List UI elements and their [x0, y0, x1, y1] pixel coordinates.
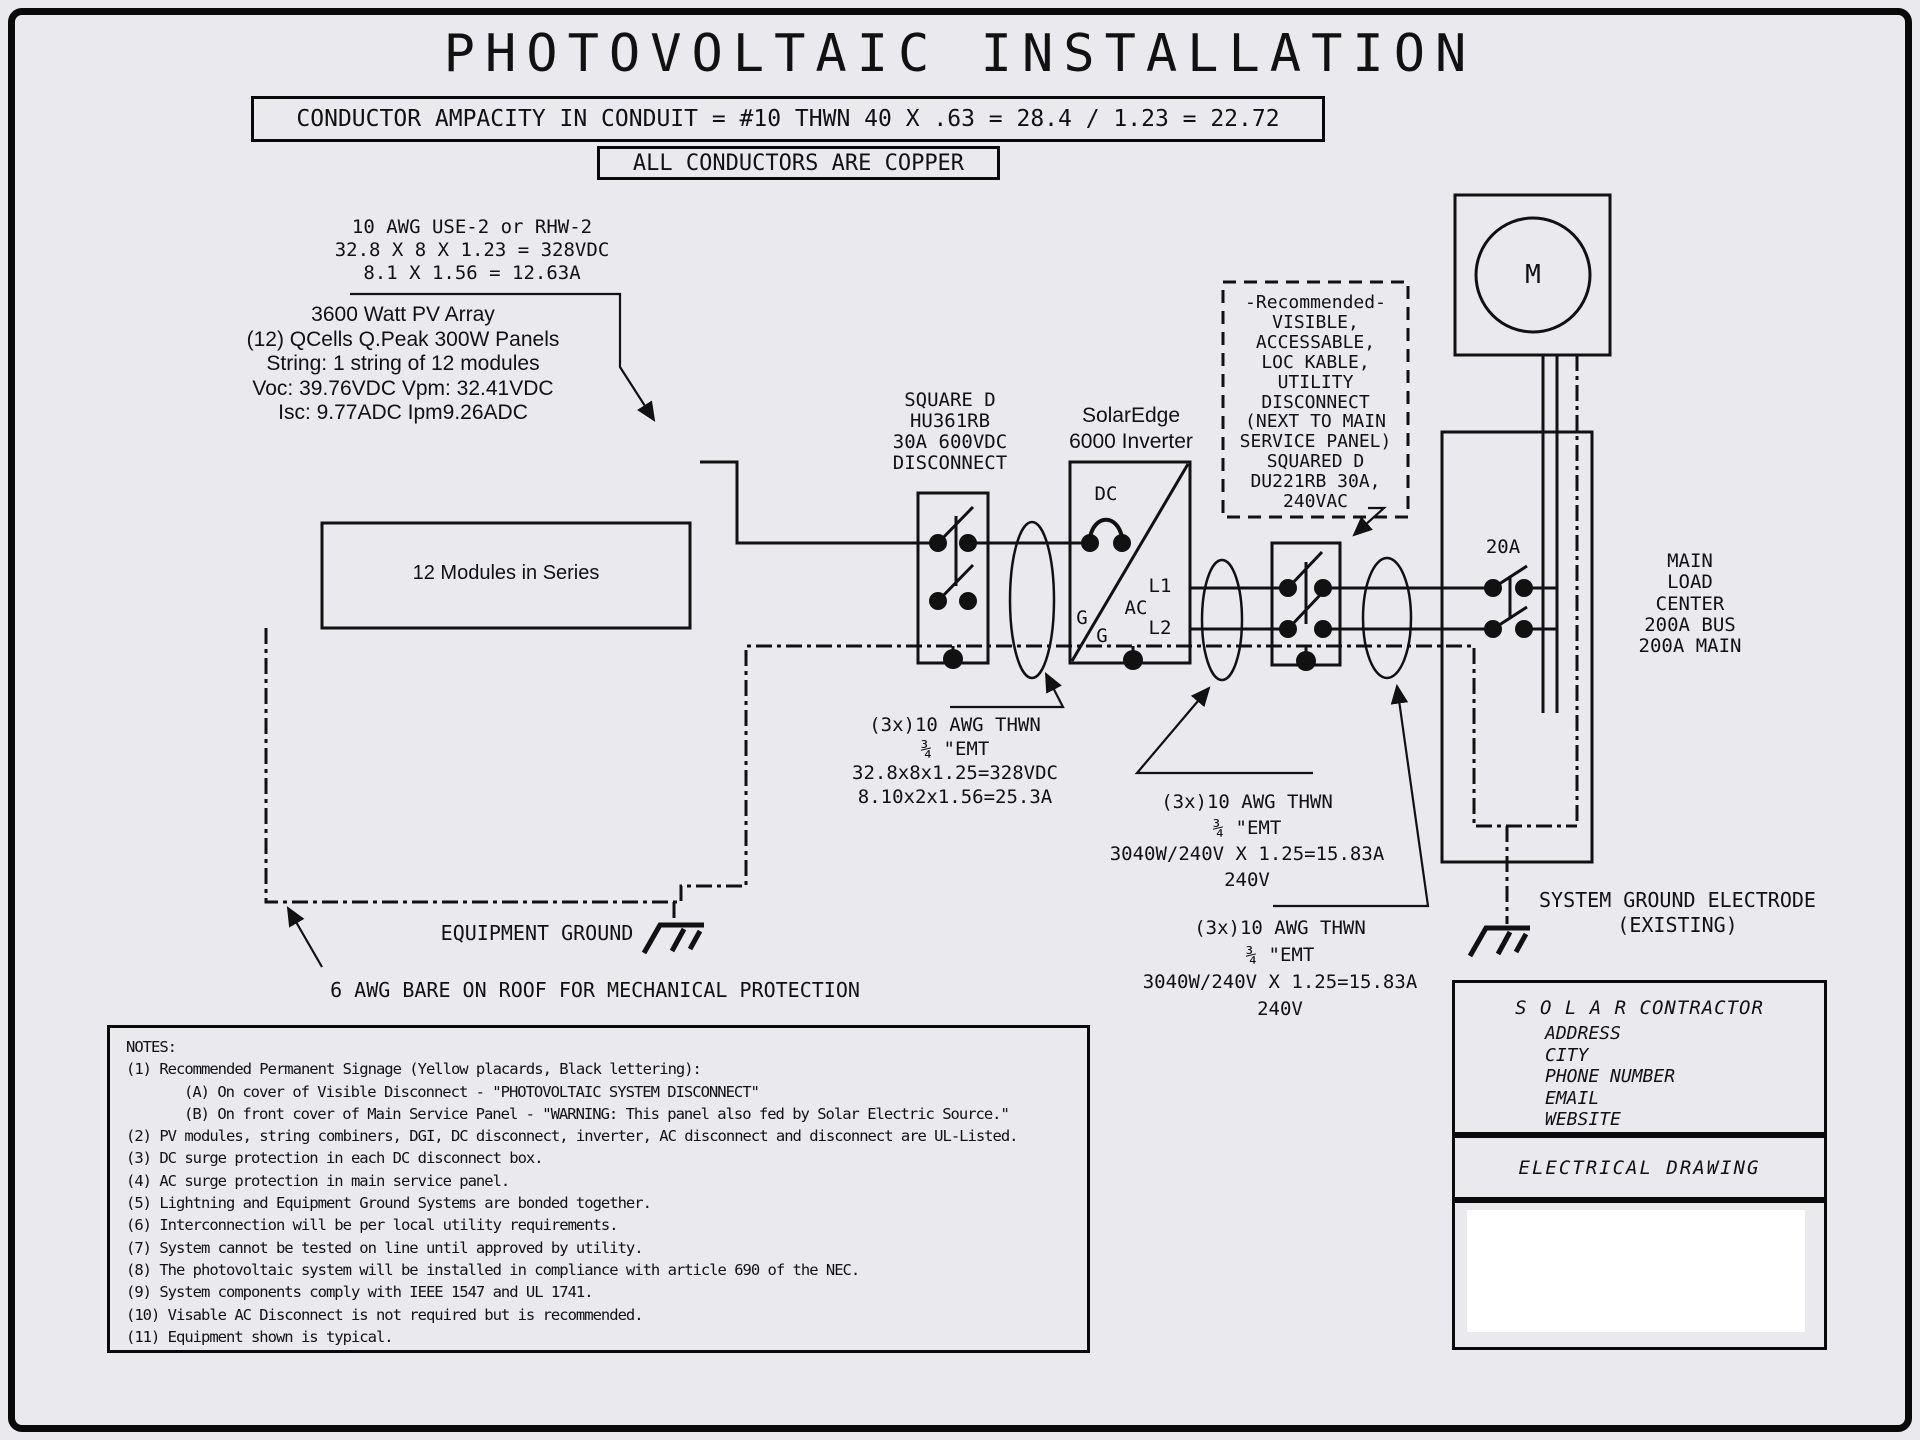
dc-disconnect-label: SQUARE D HU361RB 30A 600VDC DISCONNECT: [850, 390, 1050, 474]
note-line: (2) PV modules, string combiners, DGI, D…: [126, 1125, 1087, 1147]
note-line: (8) The photovoltaic system will be inst…: [126, 1259, 1087, 1281]
ampacity-banner-text: CONDUCTOR AMPACITY IN CONDUIT = #10 THWN…: [296, 106, 1279, 132]
note-line: (6) Interconnection will be per local ut…: [126, 1214, 1087, 1236]
conduit-note-ac1: (3x)10 AWG THWN ¾ "EMT 3040W/240V X 1.25…: [1097, 789, 1397, 893]
inverter-g2-mark: G: [1086, 625, 1118, 647]
breaker-20a-label: 20A: [1468, 536, 1538, 558]
array-calc-note: 10 AWG USE-2 or RHW-2 32.8 X 8 X 1.23 = …: [272, 216, 672, 285]
note-line: (5) Lightning and Equipment Ground Syste…: [126, 1192, 1087, 1214]
meter-mark: M: [1503, 260, 1563, 290]
system-ground-label: SYSTEM GROUND ELECTRODE (EXISTING): [1525, 888, 1830, 938]
inverter-dc-mark: DC: [1086, 483, 1126, 505]
note-line: (3) DC surge protection in each DC disco…: [126, 1147, 1087, 1169]
note-line: (A) On cover of Visible Disconnect - "PH…: [126, 1081, 1087, 1103]
electrical-drawing-page: PHOTOVOLTAIC INSTALLATION CONDUCTOR AMPA…: [0, 0, 1920, 1440]
load-center-label: MAIN LOAD CENTER 200A BUS 200A MAIN: [1590, 551, 1790, 657]
copper-banner-text: ALL CONDUCTORS ARE COPPER: [633, 151, 964, 176]
inverter-ac-mark: AC: [1116, 597, 1156, 619]
ampacity-banner: CONDUCTOR AMPACITY IN CONDUIT = #10 THWN…: [251, 96, 1325, 142]
recommended-note: -Recommended- VISIBLE, ACCESSABLE, LOC K…: [1223, 293, 1408, 512]
note-line: (7) System cannot be tested on line unti…: [126, 1237, 1087, 1259]
pv-array-note: 3600 Watt PV Array (12) QCells Q.Peak 30…: [203, 303, 603, 426]
blank-stamp-area: [1467, 1210, 1805, 1332]
equipment-ground-label: EQUIPMENT GROUND: [437, 921, 637, 945]
inverter-l1-mark: L1: [1140, 575, 1180, 597]
inverter-label: SolarEdge 6000 Inverter: [1036, 403, 1226, 455]
note-line: (9) System components comply with IEEE 1…: [126, 1281, 1087, 1303]
note-line: (10) Visable AC Disconnect is not requir…: [126, 1304, 1087, 1326]
title-block-blank: [1452, 1200, 1827, 1350]
contractor-title: S O L A R CONTRACTOR: [1455, 997, 1824, 1019]
drawing-type-label: ELECTRICAL DRAWING: [1519, 1157, 1761, 1179]
page-title: PHOTOVOLTAIC INSTALLATION: [0, 24, 1920, 84]
modules-box-label: 12 Modules in Series: [322, 562, 690, 585]
inverter-l2-mark: L2: [1140, 617, 1180, 639]
roof-note-label: 6 AWG BARE ON ROOF FOR MECHANICAL PROTEC…: [315, 978, 875, 1002]
drawing-type-block: ELECTRICAL DRAWING: [1452, 1135, 1827, 1200]
contractor-info-block: S O L A R CONTRACTOR ADDRESS CITY PHONE …: [1452, 980, 1827, 1135]
notes-heading: NOTES:: [126, 1036, 1087, 1058]
note-line: (11) Equipment shown is typical.: [126, 1326, 1087, 1348]
contractor-fields: ADDRESS CITY PHONE NUMBER EMAIL WEBSITE: [1545, 1023, 1824, 1131]
note-line: (1) Recommended Permanent Signage (Yello…: [126, 1058, 1087, 1080]
conduit-note-ac2: (3x)10 AWG THWN ¾ "EMT 3040W/240V X 1.25…: [1130, 915, 1430, 1023]
copper-banner: ALL CONDUCTORS ARE COPPER: [597, 146, 1000, 180]
notes-box: NOTES: (1) Recommended Permanent Signage…: [107, 1025, 1090, 1353]
conduit-note-dc: (3x)10 AWG THWN ¾ "EMT 32.8x8x1.25=328VD…: [805, 713, 1105, 809]
note-line: (4) AC surge protection in main service …: [126, 1170, 1087, 1192]
note-line: (B) On front cover of Main Service Panel…: [126, 1103, 1087, 1125]
